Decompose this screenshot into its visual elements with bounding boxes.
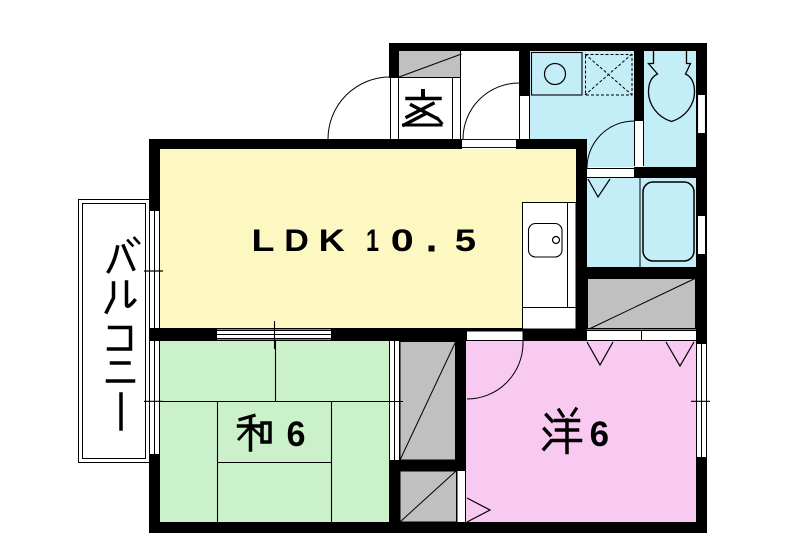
svg-text:6: 6 — [590, 414, 609, 454]
svg-text:6: 6 — [287, 414, 306, 454]
svg-text:K: K — [319, 222, 345, 258]
svg-text:L: L — [252, 222, 275, 258]
svg-text:1: 1 — [366, 222, 379, 258]
svg-text:D: D — [284, 222, 309, 258]
svg-text:5: 5 — [455, 222, 476, 258]
svg-text:0: 0 — [391, 222, 414, 258]
